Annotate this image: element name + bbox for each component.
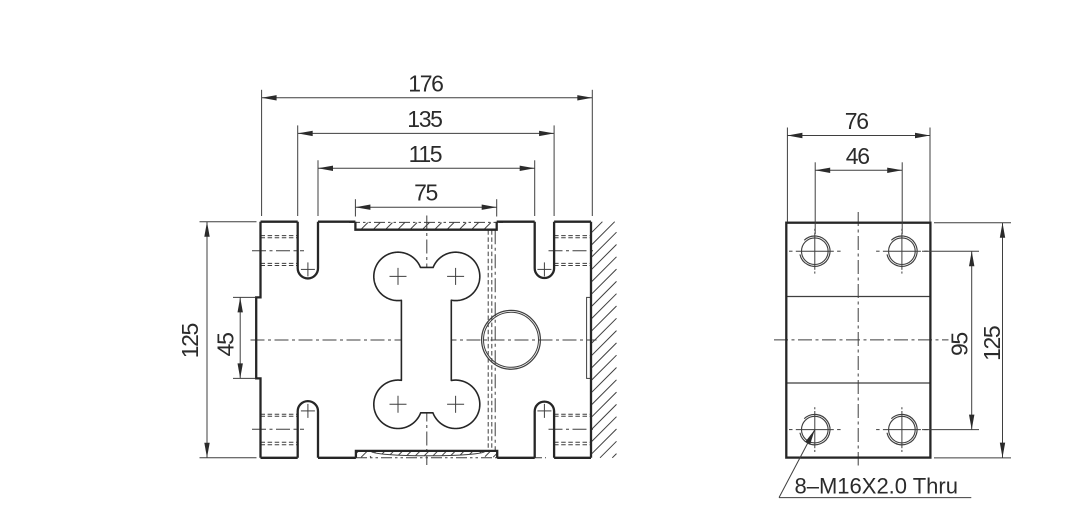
svg-text:76: 76 (845, 108, 868, 134)
svg-text:135: 135 (407, 106, 442, 132)
svg-text:125: 125 (979, 326, 1005, 361)
svg-text:45: 45 (213, 333, 239, 356)
svg-text:115: 115 (409, 141, 442, 167)
svg-text:46: 46 (846, 143, 869, 169)
svg-text:75: 75 (414, 180, 437, 206)
svg-text:125: 125 (177, 324, 203, 359)
svg-text:95: 95 (947, 333, 973, 356)
svg-text:8–M16X2.0 Thru: 8–M16X2.0 Thru (795, 474, 958, 499)
svg-text:176: 176 (408, 70, 443, 96)
